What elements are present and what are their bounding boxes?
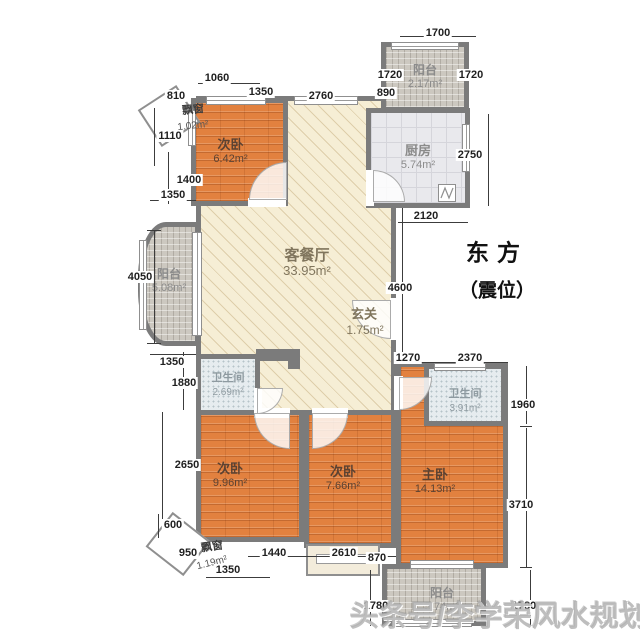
room-area: 6.42m² <box>213 153 247 166</box>
dim-label: 2120 <box>412 210 440 222</box>
window <box>462 124 470 172</box>
wall-segment <box>288 349 300 369</box>
compass-palace: （震位） <box>459 276 535 303</box>
dim-label: 1700 <box>424 27 452 39</box>
balcony-door-window <box>192 232 202 336</box>
room-label: 卫生间 <box>449 387 482 401</box>
room-area: 2.69m² <box>212 386 243 399</box>
dimension-line <box>158 514 159 538</box>
room-area: 2.17m² <box>408 78 442 91</box>
dim-label: 4600 <box>386 282 414 294</box>
dim-label: 890 <box>375 87 397 99</box>
watermark: 头条号/李学荣风水规划 <box>350 593 640 635</box>
dimension-line <box>488 114 489 206</box>
entry-door-gap <box>390 298 398 340</box>
dimension-tick <box>147 230 161 231</box>
dim-label: 1880 <box>170 377 198 389</box>
room-area: 9.96m² <box>213 477 247 490</box>
dimension-line <box>398 222 468 223</box>
dim-label: 1720 <box>457 69 485 81</box>
room-area: 33.95m² <box>283 264 331 277</box>
dimension-line <box>154 108 155 166</box>
dimension-tick <box>520 567 532 568</box>
room-label: 次卧 <box>330 465 356 479</box>
room-label: 次卧 <box>217 462 243 476</box>
dim-label: 2650 <box>173 459 201 471</box>
room-label: 阳台 <box>157 267 181 281</box>
dim-label: 870 <box>366 552 388 564</box>
floor-plan: 客餐厅 33.95m² 次卧 6.42m² 厨房 5.74m² 阳台 2.17m… <box>0 0 640 640</box>
dim-label: 1350 <box>159 189 187 201</box>
window <box>410 560 474 569</box>
room-area: 5.08m² <box>152 282 186 295</box>
dimension-line <box>162 412 163 530</box>
dim-label: 4050 <box>126 271 154 283</box>
room-label: 客餐厅 <box>284 249 329 263</box>
dim-label: 2370 <box>456 352 484 364</box>
room-bath-master: 卫生间 3.91m² <box>424 364 506 426</box>
compass-note: 东方 （震位） <box>459 234 535 303</box>
room-label: 主卧 <box>422 468 448 482</box>
room-area: 3.91m² <box>449 402 480 415</box>
entry-area: 1.75m² <box>346 323 383 337</box>
dim-label: 1400 <box>175 174 203 186</box>
dim-label: 1440 <box>260 547 288 559</box>
room-label: 卫生间 <box>212 371 245 385</box>
window <box>391 42 459 50</box>
dim-label: 2760 <box>307 90 335 102</box>
dimension-line <box>526 366 527 424</box>
window <box>139 240 147 330</box>
room-bath-small: 卫生间 2.69m² <box>196 354 260 416</box>
dim-label: 1960 <box>509 399 537 411</box>
fridge-icon <box>438 184 456 202</box>
dim-label: 1350 <box>158 356 186 368</box>
dimension-tick <box>147 343 161 344</box>
dim-label: 1060 <box>203 72 231 84</box>
room-label: 阳台 <box>413 63 437 77</box>
dim-label: 2750 <box>456 149 484 161</box>
dim-label: 1110 <box>156 130 183 142</box>
room-area: 5.74m² <box>401 159 435 172</box>
room-area: 14.13m² <box>415 483 455 496</box>
dimension-tick <box>520 426 532 427</box>
dim-label: 1350 <box>247 86 275 98</box>
compass-direction: 东方 <box>459 234 535 268</box>
dim-label: 1270 <box>394 352 422 364</box>
dim-label: 1720 <box>376 69 404 81</box>
dim-label: 600 <box>162 519 184 531</box>
bay-top-label: 飘窗 <box>181 100 205 118</box>
dim-label: 3710 <box>507 499 535 511</box>
room-label: 次卧 <box>217 138 243 152</box>
entry-label: 玄关 <box>351 304 377 323</box>
dimension-line <box>154 230 155 344</box>
window <box>434 363 486 371</box>
bay-bottom-label: 飘窗 <box>200 537 224 556</box>
dim-label: 1350 <box>214 564 242 576</box>
room-label: 厨房 <box>405 144 431 158</box>
dim-label: 950 <box>177 547 199 559</box>
dimension-line <box>150 354 196 355</box>
dimension-line <box>206 577 270 578</box>
dim-label: 810 <box>165 90 187 102</box>
dim-label: 2610 <box>330 547 358 559</box>
room-area: 7.66m² <box>326 480 360 493</box>
room-balcony-left: 阳台 5.08m² <box>138 222 200 346</box>
dimension-line <box>526 428 527 568</box>
